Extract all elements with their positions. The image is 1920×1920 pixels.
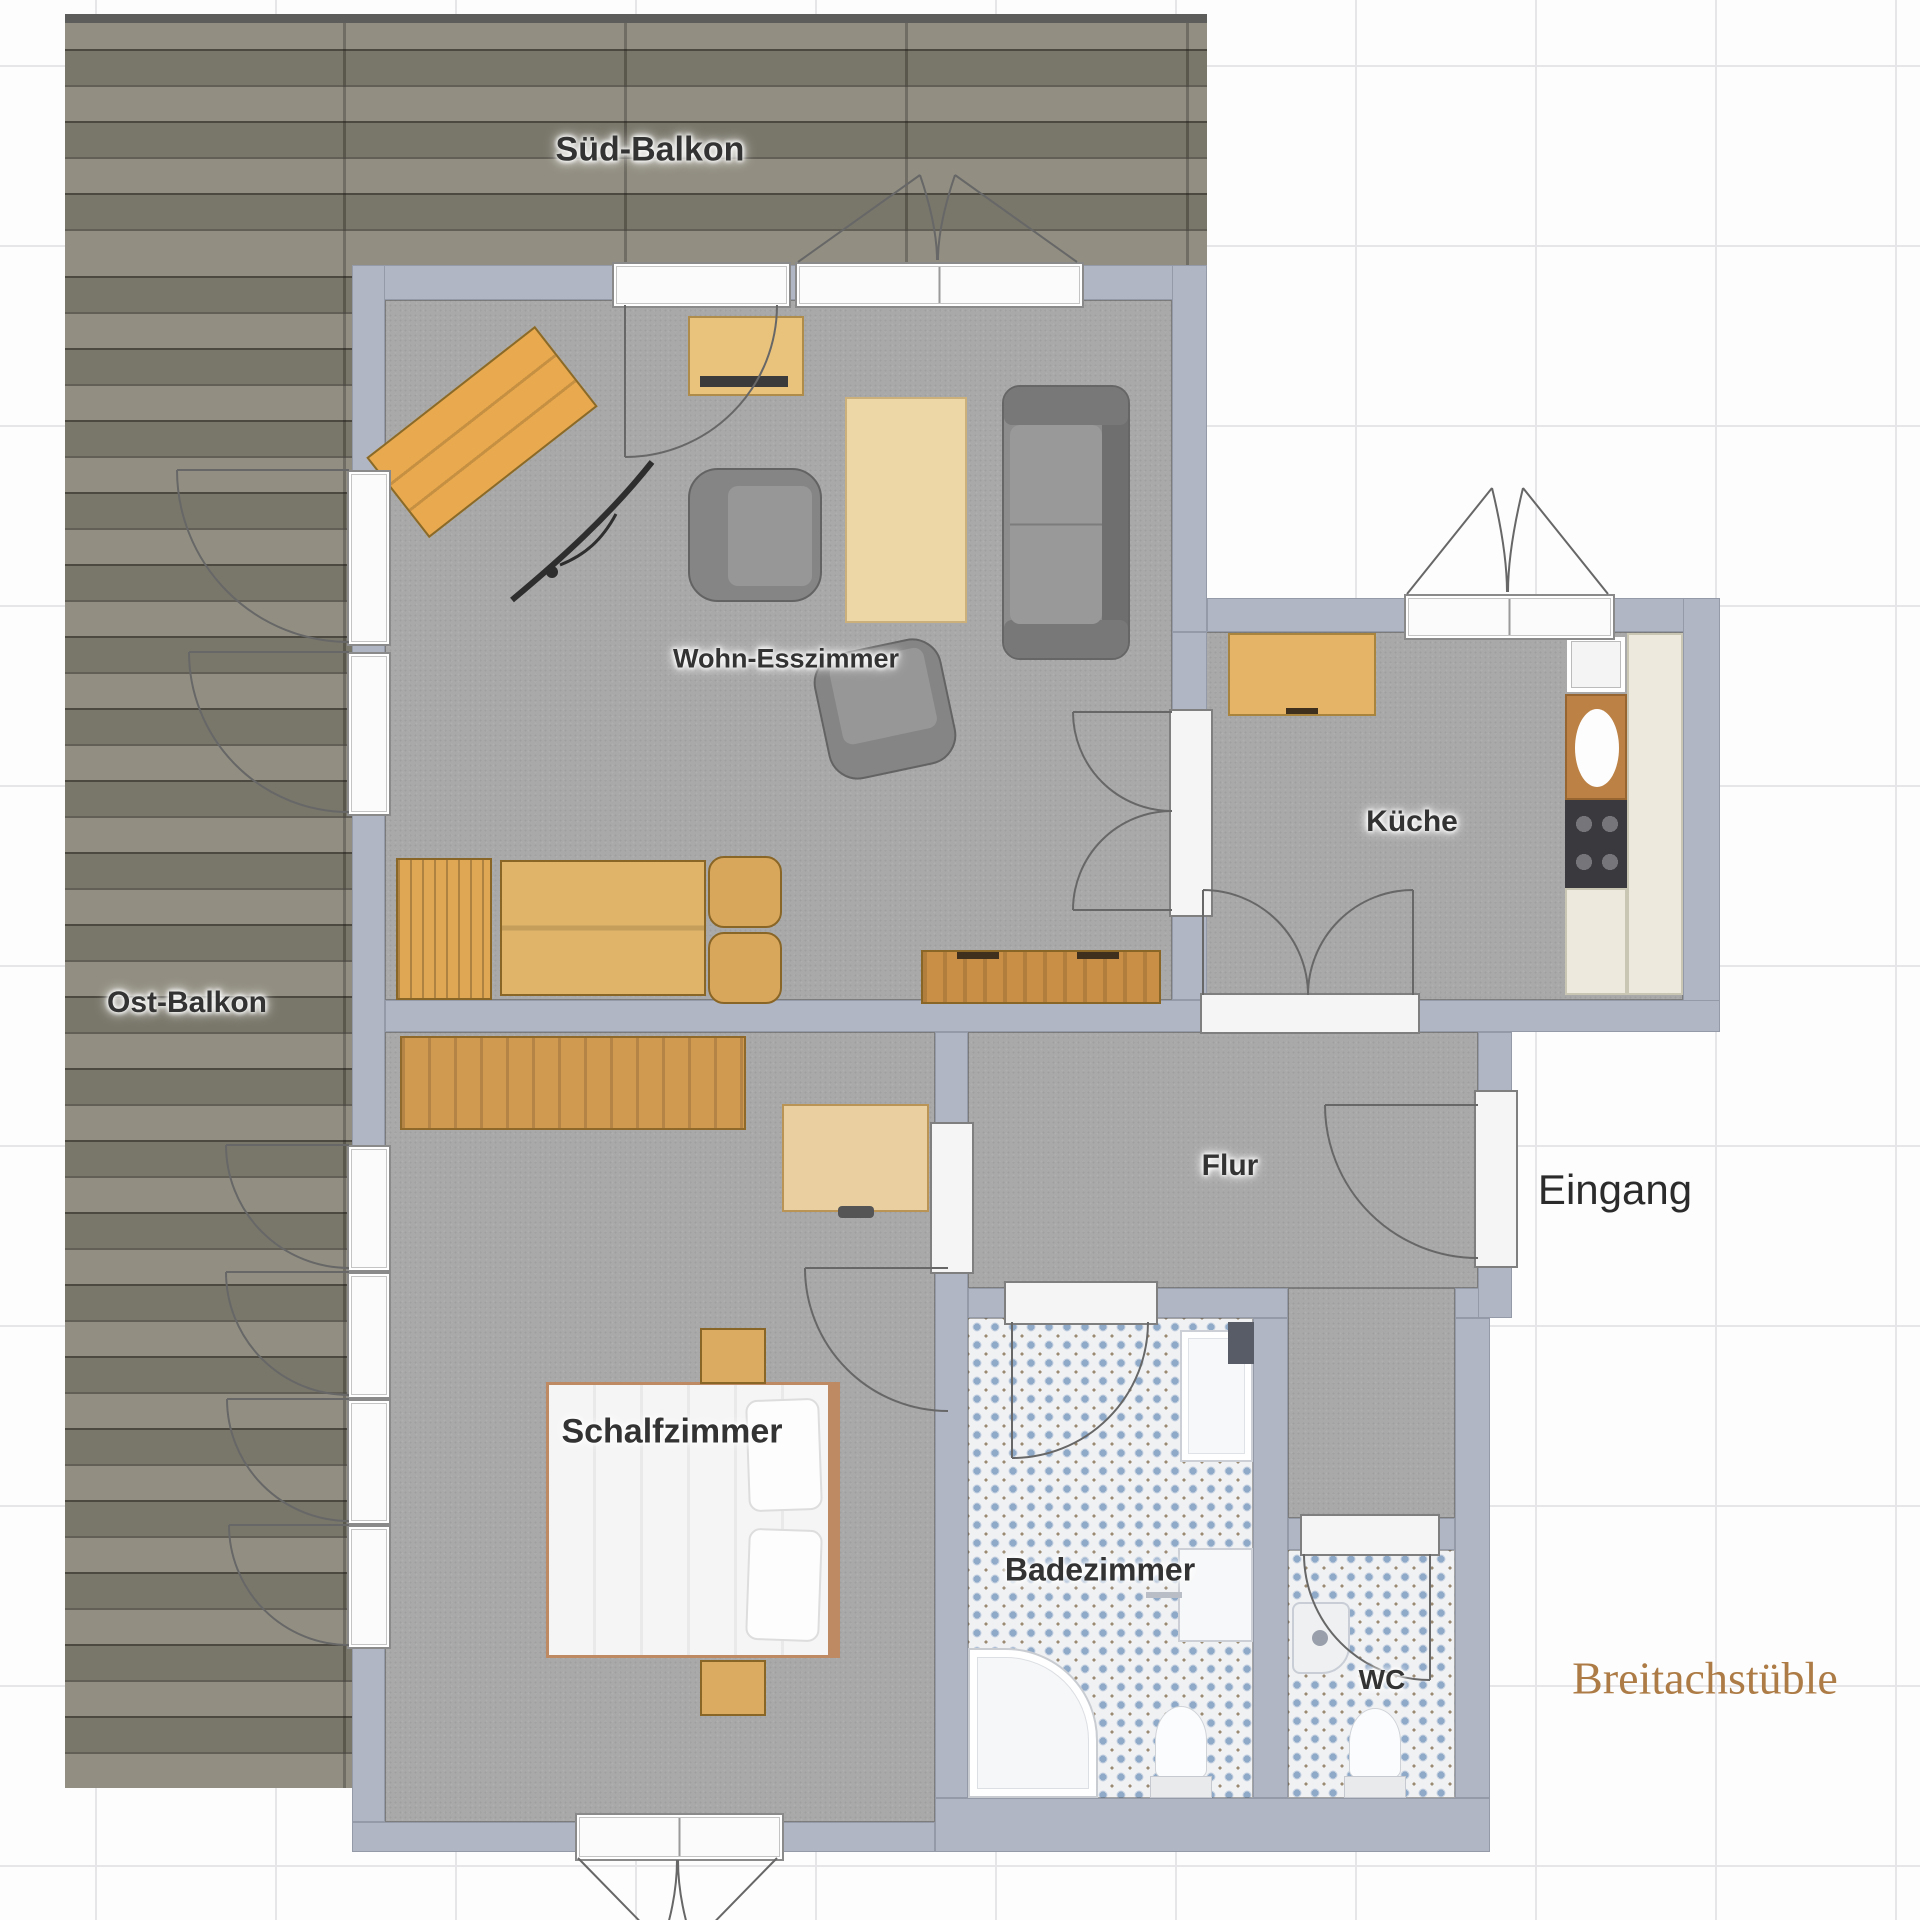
sofa-back xyxy=(1102,387,1128,658)
label-eingang: Eingang xyxy=(1538,1166,1692,1214)
stove xyxy=(1565,800,1627,888)
kitchen-window xyxy=(1404,594,1615,640)
label-ost-balkon: Ost-Balkon xyxy=(107,986,267,1020)
kitchen-cabinet-low xyxy=(1565,888,1627,995)
sofa-arm-top xyxy=(1004,387,1128,425)
sideboard xyxy=(921,950,1161,1004)
bath-sink-faucet xyxy=(1146,1592,1182,1598)
coffee-table xyxy=(845,397,967,623)
duct-box xyxy=(1228,1322,1254,1364)
sideboard-handle-1 xyxy=(957,952,999,959)
wall-kitchen-north-left xyxy=(1207,598,1407,632)
entrance-door xyxy=(1474,1090,1518,1268)
kitchen-sink xyxy=(1575,709,1619,787)
flur-strip-floor xyxy=(1288,1288,1455,1518)
kitchen-table-handle xyxy=(1286,708,1318,714)
wall-east-lower xyxy=(1455,1318,1490,1798)
nightstand-top xyxy=(700,1328,766,1384)
bath-toilet-tank xyxy=(1150,1776,1212,1798)
label-flur: Flur xyxy=(1202,1149,1259,1183)
wall-bath-east xyxy=(1253,1318,1288,1798)
door-bedroom xyxy=(930,1122,974,1274)
floor-plan: Süd-Balkon Ost-Balkon Wohn-Esszimmer Küc… xyxy=(0,0,1920,1920)
wc-toilet-tank xyxy=(1344,1776,1406,1798)
dining-table xyxy=(500,860,706,996)
sideboard-handle-2 xyxy=(1077,952,1119,959)
label-title: Breitachstüble xyxy=(1572,1652,1838,1705)
desk-chair xyxy=(838,1206,874,1218)
bath-toilet-bowl xyxy=(1155,1706,1207,1780)
sofa-seat xyxy=(1010,425,1102,624)
label-schlafzimmer: Schalfzimmer xyxy=(561,1413,782,1452)
west-window-bed-1 xyxy=(347,1145,391,1272)
sued-balkon-edge xyxy=(65,14,1207,23)
wc-toilet-bowl xyxy=(1349,1708,1401,1780)
balcony-door-window xyxy=(612,262,791,308)
balcony-double-door xyxy=(795,262,1084,308)
pillow-2 xyxy=(745,1528,823,1643)
wc-sink-knob xyxy=(1312,1630,1328,1646)
label-badezimmer: Badezimmer xyxy=(1005,1552,1195,1589)
label-sued-balkon: Süd-Balkon xyxy=(556,131,745,170)
label-wohn-esszimmer: Wohn-Esszimmer xyxy=(673,644,899,675)
ost-balkon-deck xyxy=(65,265,352,1788)
wall-south-band xyxy=(385,1000,1720,1032)
door-kitchen-flur xyxy=(1200,993,1420,1034)
sofa-arm-bottom xyxy=(1004,620,1128,658)
armchair-top xyxy=(688,468,822,602)
nightstand-bottom xyxy=(700,1660,766,1716)
kitchen-table xyxy=(1228,633,1376,716)
label-wc: WC xyxy=(1359,1664,1406,1696)
armchair-top-seat xyxy=(728,486,812,586)
wall-kitchen-east xyxy=(1683,598,1720,1032)
west-window-bed-4 xyxy=(347,1525,391,1649)
wc-toilet xyxy=(1344,1708,1406,1798)
wall-living-kitchen-b xyxy=(1172,910,1207,1000)
dining-chair-2 xyxy=(708,932,782,1004)
tv xyxy=(700,376,788,387)
wardrobe xyxy=(400,1036,746,1130)
kitchen-counter xyxy=(1627,633,1683,995)
door-wc xyxy=(1300,1514,1440,1556)
sofa xyxy=(1002,385,1130,660)
door-living-kitchen xyxy=(1169,709,1213,917)
west-window-bed-3 xyxy=(347,1399,391,1525)
bath-toilet xyxy=(1150,1706,1212,1798)
wall-south-bath-wc xyxy=(935,1798,1490,1852)
wall-living-east-upper xyxy=(1172,265,1207,632)
west-window-living-2 xyxy=(347,652,391,816)
west-window-bed-2 xyxy=(347,1272,391,1399)
fridge xyxy=(1565,635,1627,694)
dining-chair-1 xyxy=(708,856,782,928)
bedroom-south-window xyxy=(575,1813,784,1861)
wc-corner-sink xyxy=(1292,1602,1350,1674)
sink-unit xyxy=(1565,694,1627,800)
dining-shelf xyxy=(396,858,492,1000)
wall-living-kitchen-a xyxy=(1172,632,1207,712)
desk xyxy=(782,1104,929,1212)
tv-board xyxy=(688,316,804,396)
door-bathroom xyxy=(1004,1281,1158,1325)
west-window-living-1 xyxy=(347,470,391,646)
bed-headboard xyxy=(828,1385,837,1655)
label-kueche: Küche xyxy=(1366,805,1458,839)
